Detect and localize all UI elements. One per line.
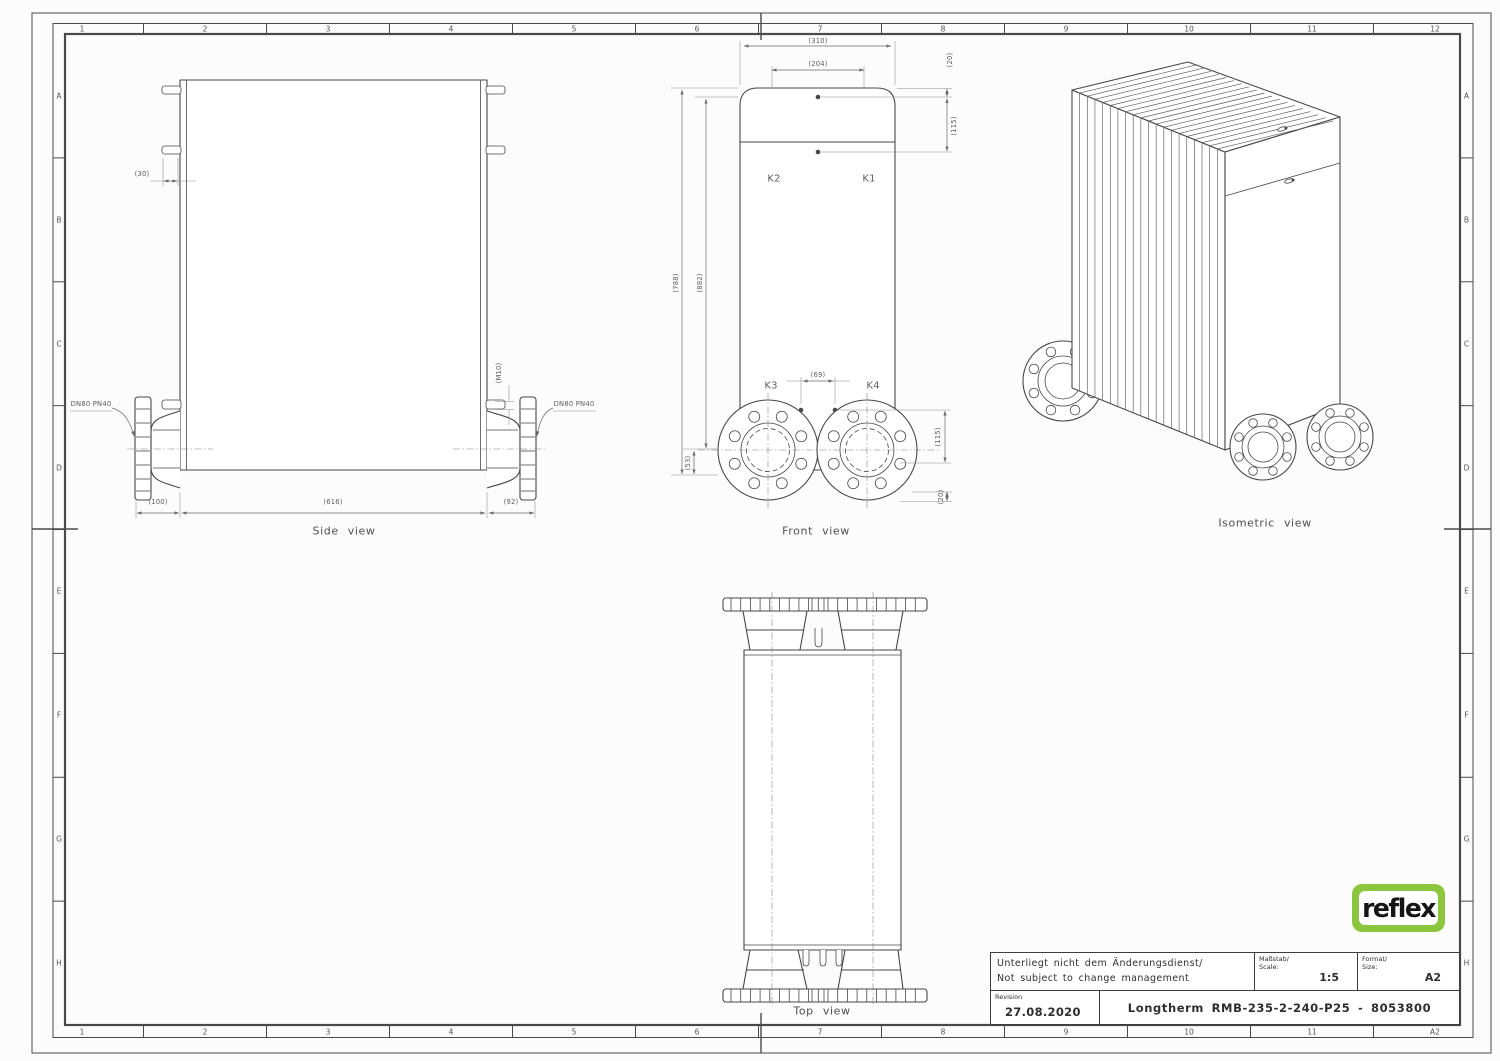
grid-col-top-10: 10 [1184, 24, 1194, 33]
dim-m10: (M10) [495, 363, 503, 384]
top-view [723, 598, 927, 1002]
flange-label-left: DN80 PN40 [71, 400, 112, 408]
scale-label-de: Maßstab/ [1259, 955, 1289, 963]
scale-value: 1:5 [1319, 971, 1339, 984]
top-center-stud [815, 628, 822, 647]
side-view [135, 80, 536, 500]
grid-row-left-F: F [57, 711, 61, 720]
grid-row-right-F: F [1464, 711, 1468, 720]
grid-col-top-12: 12 [1430, 24, 1440, 33]
format-label-de: Format/ [1362, 955, 1387, 963]
revision-cell: Revision 27.08.2020 [991, 991, 1100, 1024]
grid-col-top-2: 2 [203, 24, 208, 33]
dim-100: (100) [148, 498, 167, 506]
grid-row-right-E: E [1464, 587, 1469, 596]
format-value: A2 [1425, 971, 1441, 984]
grid-row-right-A: A [1464, 91, 1469, 100]
drawing-canvas: .ln{stroke:#474747;stroke-width:1.1;fill… [0, 0, 1500, 1061]
grid-row-left-H: H [56, 959, 62, 968]
grid-col-top-4: 4 [449, 24, 454, 33]
title-block: Unterliegt nicht dem Änderungsdienst/ No… [990, 952, 1460, 1025]
grid-col-top-6: 6 [695, 24, 700, 33]
front-view-label: Front view [782, 525, 850, 538]
dim-115-bottom: (115) [934, 427, 942, 446]
flange-label-right: DN80 PN40 [554, 400, 595, 408]
grid-row-left-A: A [56, 91, 61, 100]
dim-20-top: (20) [946, 53, 954, 68]
scale-cell: Maßstab/ Scale: 1:5 [1255, 953, 1358, 990]
grid-row-left-C: C [56, 339, 61, 348]
side-neck-right [487, 411, 520, 488]
format-label-en: Size: [1362, 963, 1387, 971]
drawing-title: Longtherm RMB-235-2-240-P25 - 8053800 [1100, 991, 1459, 1024]
dim-616: (616) [323, 498, 342, 506]
dim-30: (30) [135, 170, 150, 178]
top-flange-strip-lower [723, 989, 927, 1002]
grid-row-left-B: B [56, 215, 61, 224]
change-note: Unterliegt nicht dem Änderungsdienst/ No… [991, 953, 1255, 990]
grid-col-top-7: 7 [818, 24, 823, 33]
reflex-logo-inner: reflex [1359, 891, 1438, 925]
iso-view-label: Isometric view [1218, 517, 1311, 530]
side-flange-left [135, 397, 151, 500]
grid-row-left-G: G [56, 835, 62, 844]
dim-115-top: (115) [950, 116, 958, 135]
port-k4: K4 [866, 381, 879, 392]
side-view-label: Side view [312, 525, 375, 538]
reflex-logo-text: reflex [1362, 893, 1435, 923]
grid-col-bottom-8: 8 [941, 1027, 946, 1036]
isometric-view [1023, 62, 1373, 480]
iso-front-face [1225, 117, 1340, 450]
change-note-en: Not subject to change management [997, 971, 1248, 986]
grid-row-right-H: H [1464, 959, 1470, 968]
grid-row-right-D: D [1464, 463, 1470, 472]
grid-col-bottom-11: 11 [1307, 1027, 1317, 1036]
dim-69: (69) [811, 371, 826, 379]
dim-310: (310) [808, 37, 827, 45]
grid-col-top-11: 11 [1307, 24, 1317, 33]
drawing-sheet: .ln{stroke:#474747;stroke-width:1.1;fill… [0, 0, 1500, 1061]
dim-53: (53) [684, 456, 692, 471]
grid-col-top-9: 9 [1064, 24, 1069, 33]
revision-label: Revision [995, 993, 1022, 1001]
grid-col-bottom-5: 5 [572, 1027, 577, 1036]
grid-col-top-3: 3 [326, 24, 331, 33]
scale-label-en: Scale: [1259, 963, 1289, 971]
dim-788: (788) [672, 273, 680, 292]
grid-col-bottom-10: 10 [1184, 1027, 1194, 1036]
grid-row-left-E: E [57, 587, 62, 596]
dim-20-bottom: (20) [937, 490, 945, 505]
port-k3: K3 [764, 381, 777, 392]
grid-col-bottom-6: 6 [695, 1027, 700, 1036]
revision-date: 27.08.2020 [1005, 1005, 1081, 1019]
top-flange-strip-upper [723, 598, 927, 611]
grid-col-bottom-9: 9 [1064, 1027, 1069, 1036]
side-neck-left [151, 411, 180, 488]
grid-col-bottom-3: 3 [326, 1027, 331, 1036]
grid-row-right-C: C [1464, 339, 1469, 348]
dim-204: (204) [808, 60, 827, 68]
grid-col-bottom-1: 1 [80, 1027, 85, 1036]
side-flange-right [520, 397, 536, 500]
grid-col-bottom-2: 2 [203, 1027, 208, 1036]
grid-col-bottom-4: 4 [449, 1027, 454, 1036]
grid-row-right-G: G [1464, 835, 1470, 844]
grid-col-top-8: 8 [941, 24, 946, 33]
dim-882: (882) [696, 273, 704, 292]
grid-row-left-D: D [56, 463, 62, 472]
top-view-label: Top view [793, 1005, 850, 1018]
reflex-logo: reflex [1352, 884, 1445, 932]
front-view [718, 88, 917, 500]
grid-row-right-B: B [1464, 215, 1469, 224]
format-cell: Format/ Size: A2 [1358, 953, 1459, 990]
grid-col-bottom-A2: A2 [1430, 1027, 1440, 1036]
port-k2: K2 [767, 174, 780, 185]
dim-92: (92) [504, 498, 519, 506]
top-body [744, 650, 901, 950]
port-k1: K1 [862, 174, 875, 185]
grid-col-top-1: 1 [80, 24, 85, 33]
grid-col-bottom-7: 7 [818, 1027, 823, 1036]
change-note-de: Unterliegt nicht dem Änderungsdienst/ [997, 956, 1248, 971]
grid-col-top-5: 5 [572, 24, 577, 33]
